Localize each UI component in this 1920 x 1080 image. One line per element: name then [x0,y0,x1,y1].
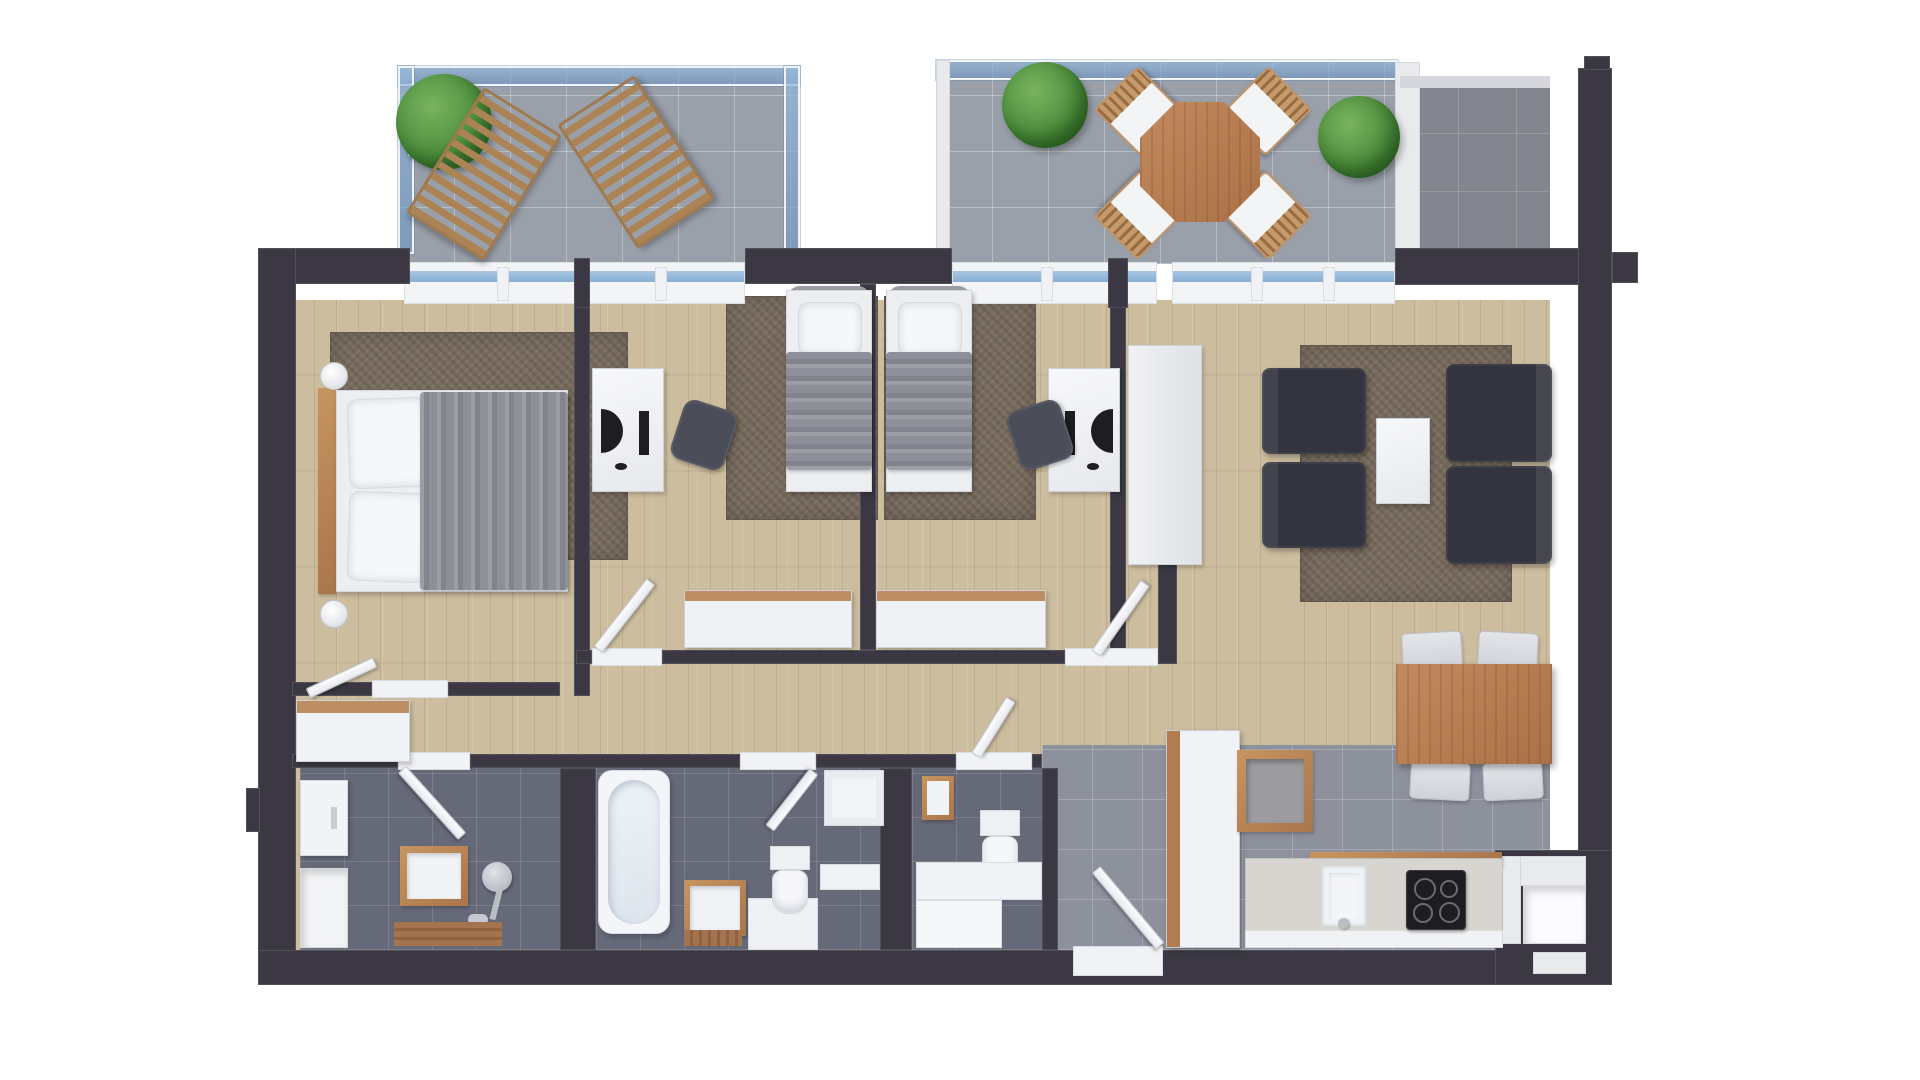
desk-bedroom-2 [592,368,664,492]
toilet-tank [980,810,1020,836]
wc-wall-cabinet [922,776,954,820]
desk-mouse [1087,463,1099,470]
wardrobe-bedroom-2 [684,590,852,648]
burner [1439,902,1460,923]
armchair-1 [1262,368,1366,454]
dining-chair [1409,760,1471,801]
wooden-shower-mat [394,922,502,946]
floor-plan-stage [0,0,1920,1080]
kitchen-sink [1322,866,1366,926]
coffee-table [1376,418,1430,504]
desk-mouse [615,463,627,470]
wall-master-south-b [448,682,560,696]
bath-shelf [820,864,880,890]
wall-bathroom-wc [880,768,912,950]
window-glass [1173,271,1394,282]
dining-table [1396,664,1552,764]
bathtub [598,770,670,934]
corner-notch [1533,952,1586,974]
toilet-bowl [772,870,808,914]
burner [1440,880,1458,898]
pillow [898,302,962,356]
window-mullion [1251,267,1263,301]
vanity-sink [407,853,461,899]
room-entrance [1058,772,1166,950]
window-mullion [655,267,667,301]
window-mullion [1323,267,1335,301]
window-post-master [574,258,590,308]
sofa-section-2 [1446,466,1552,564]
burner [1413,903,1433,923]
wall-bath-north-b [470,754,740,768]
wall-bath-north-c [816,754,956,768]
pillow [798,302,862,356]
tv-console [1128,345,1202,565]
wall-shower-bathroom [560,768,596,950]
door-sill-bathroom [740,752,816,770]
glass-railing-main [936,60,1398,80]
burner [1414,878,1436,900]
window-post-living [1108,258,1128,308]
desk-accessory [639,411,649,455]
bed-throw [886,352,972,470]
door-sill-bedroom3 [1065,648,1158,666]
front-door-sill [1073,946,1163,976]
bedside-lamp [320,600,348,628]
wall-left [258,248,296,985]
floor-terrace-corner [1400,85,1550,250]
shower-room-vanity [400,846,468,906]
wall-living-stub [1158,560,1177,664]
wall-master-bedroom2 [574,284,590,696]
pillow [346,491,429,584]
wall-right [1578,68,1612,970]
window-mullion [497,267,509,301]
bed-headboard [318,388,336,594]
closet-handle [331,807,337,829]
wall-left-nub [246,788,260,832]
toilet-tank [770,846,810,870]
open-niche [300,868,348,948]
wall-bottom [258,950,1612,985]
wall-bed-header [745,248,952,284]
bed-throw [420,392,568,590]
wall-bedroom2-south-b [662,650,1065,664]
terrace-top-edge [1400,76,1550,88]
wardrobe-bedroom-3 [876,590,1046,648]
storage-niche [1523,886,1586,944]
door-sill-wc [956,752,1032,770]
wall-right-cap [1584,56,1610,70]
bed-throw [786,352,872,470]
sink-faucet [1338,918,1349,929]
counter-front-edge [1245,930,1503,948]
open-wall-cabinet [1237,750,1313,832]
glass-railing-right [784,66,800,254]
plant-shrub-mid-right [1318,96,1400,178]
wc-counter [916,862,1042,900]
wc-counter-step [916,900,1002,948]
bath-vanity [684,880,746,936]
octagonal-patio-table [1140,102,1260,222]
storage-closet [300,780,348,856]
balcony-main-left-wall [936,60,950,264]
bedside-lamp [320,362,348,390]
sofa-section-1 [1446,364,1552,462]
wall-bedroom2-south-a [576,650,592,664]
wall-bath-north-d [1032,754,1042,768]
cabinet-door [927,781,949,815]
armchair-2 [1262,462,1366,548]
cooktop [1406,870,1466,930]
wall-stub-right [1612,252,1638,283]
shower-head [482,862,512,892]
window-mullion [1041,267,1053,301]
wooden-bath-mat [684,930,742,946]
shower-tray [824,770,884,826]
sideboard-wood-top [296,700,410,762]
door-sill-master [372,680,448,698]
dining-chair [1482,760,1544,801]
cabinet-interior [1246,759,1304,823]
wall-wc-entrance [1042,768,1058,950]
vanity-sink [690,886,740,930]
window-band-living [1172,262,1395,304]
fridge-cabinet [1166,730,1240,948]
desk-monitor [1091,409,1113,453]
plant-shrub-mid-left [1002,62,1088,148]
desk-monitor [601,409,623,453]
pillow [346,397,429,490]
bathtub-basin [608,780,660,924]
